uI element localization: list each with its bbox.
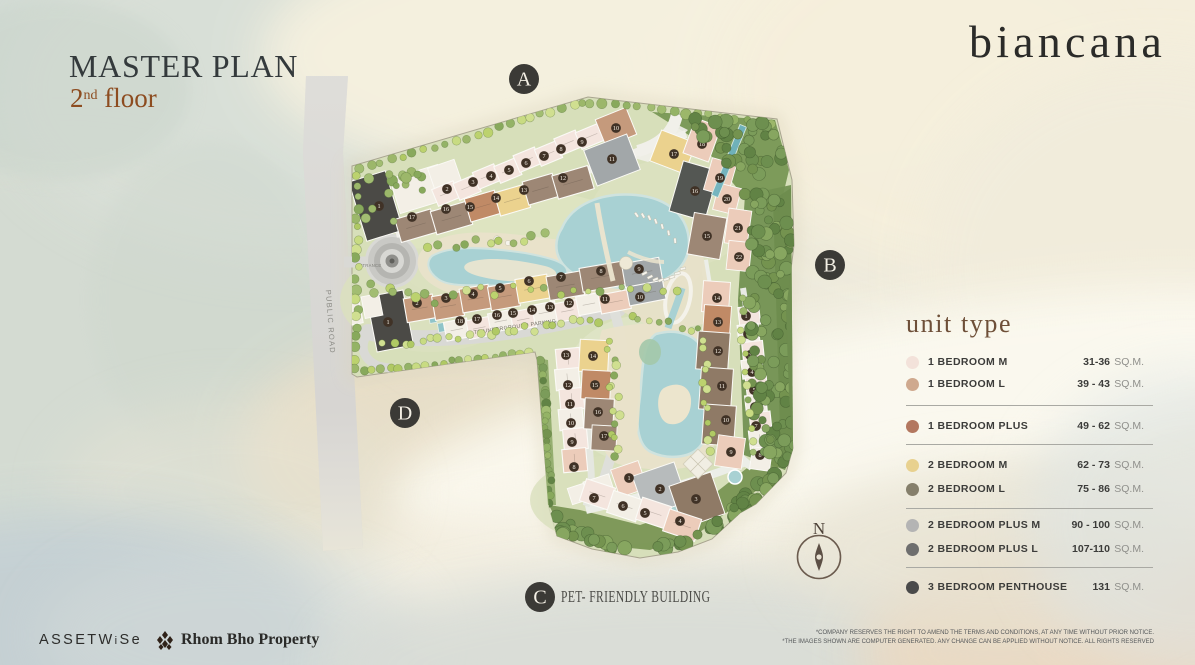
svg-text:6: 6 — [527, 278, 530, 285]
svg-text:C: C — [533, 587, 546, 609]
svg-text:19: 19 — [717, 175, 723, 182]
svg-text:22: 22 — [736, 254, 742, 261]
svg-text:2: 2 — [445, 186, 448, 193]
svg-text:2: 2 — [658, 486, 661, 493]
svg-text:3: 3 — [444, 295, 447, 302]
svg-text:11: 11 — [719, 383, 725, 390]
svg-text:7: 7 — [559, 274, 562, 281]
svg-text:11: 11 — [567, 401, 573, 408]
svg-text:3: 3 — [471, 179, 474, 186]
svg-text:14: 14 — [714, 295, 720, 302]
svg-text:1: 1 — [627, 475, 630, 482]
svg-text:12: 12 — [715, 348, 721, 355]
svg-text:9: 9 — [637, 266, 640, 273]
svg-text:16: 16 — [595, 409, 601, 416]
svg-text:12: 12 — [560, 175, 566, 182]
svg-text:9: 9 — [580, 139, 583, 146]
svg-text:7: 7 — [592, 495, 595, 502]
svg-text:5: 5 — [643, 510, 646, 517]
svg-text:16: 16 — [443, 206, 449, 213]
svg-text:4: 4 — [678, 518, 681, 525]
svg-text:5: 5 — [507, 167, 510, 174]
svg-text:A: A — [517, 69, 532, 91]
svg-text:13: 13 — [715, 319, 721, 326]
svg-text:12: 12 — [565, 382, 571, 389]
svg-text:B: B — [823, 255, 836, 277]
svg-text:8: 8 — [599, 268, 602, 275]
svg-text:15: 15 — [510, 310, 516, 317]
svg-text:10: 10 — [568, 420, 574, 427]
svg-text:D: D — [398, 403, 412, 425]
svg-text:15: 15 — [467, 204, 473, 211]
svg-text:11: 11 — [602, 296, 608, 303]
svg-text:6: 6 — [524, 160, 527, 167]
svg-text:10: 10 — [613, 125, 619, 132]
svg-text:17: 17 — [474, 316, 480, 323]
svg-text:10: 10 — [723, 417, 729, 424]
svg-text:15: 15 — [704, 233, 710, 240]
svg-text:7: 7 — [542, 153, 545, 160]
svg-text:13: 13 — [521, 187, 527, 194]
svg-text:4: 4 — [489, 173, 492, 180]
svg-text:21: 21 — [735, 225, 741, 232]
svg-text:17: 17 — [409, 214, 415, 221]
svg-text:9: 9 — [570, 439, 573, 446]
svg-text:8: 8 — [559, 146, 562, 153]
svg-text:16: 16 — [494, 312, 500, 319]
svg-text:3: 3 — [694, 496, 697, 503]
svg-text:4: 4 — [471, 291, 474, 298]
svg-text:16: 16 — [692, 188, 698, 195]
svg-text:13: 13 — [547, 304, 553, 311]
svg-text:12: 12 — [566, 300, 572, 307]
svg-text:11: 11 — [609, 156, 615, 163]
svg-text:13: 13 — [563, 352, 569, 359]
svg-text:15: 15 — [592, 382, 598, 389]
svg-text:5: 5 — [498, 285, 501, 292]
svg-text:17: 17 — [671, 151, 677, 158]
svg-text:17: 17 — [601, 433, 607, 440]
svg-text:1: 1 — [386, 319, 389, 326]
svg-text:8: 8 — [572, 464, 575, 471]
svg-text:10: 10 — [637, 294, 643, 301]
svg-text:9: 9 — [729, 449, 732, 456]
svg-text:14: 14 — [590, 353, 596, 360]
svg-text:1: 1 — [377, 203, 380, 210]
svg-text:14: 14 — [493, 195, 499, 202]
svg-text:18: 18 — [457, 318, 463, 325]
svg-text:6: 6 — [621, 503, 624, 510]
svg-text:20: 20 — [724, 196, 730, 203]
svg-text:PET- FRIENDLY BUILDING: PET- FRIENDLY BUILDING — [561, 588, 710, 607]
svg-text:14: 14 — [529, 307, 535, 314]
